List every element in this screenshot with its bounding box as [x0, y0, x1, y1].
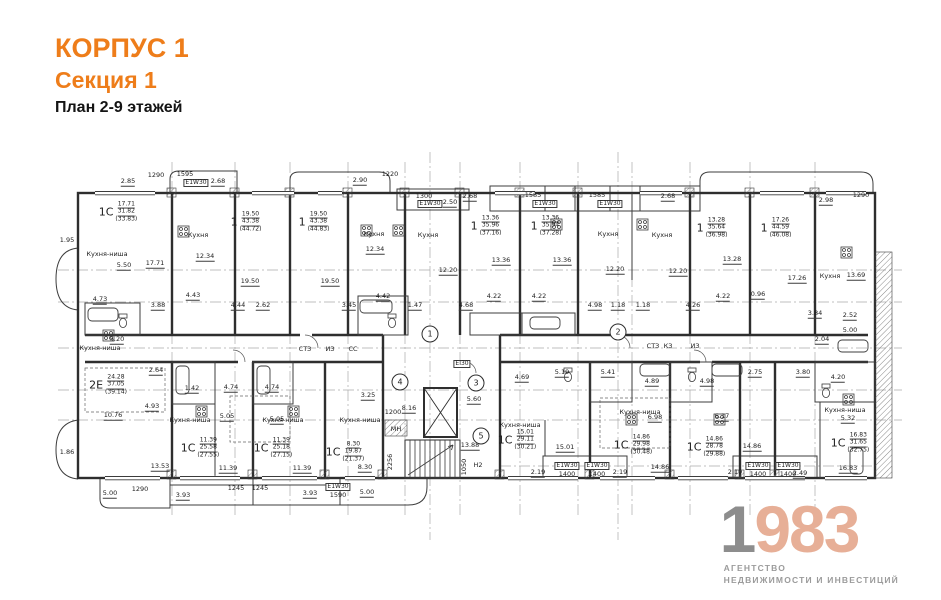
plan-label: 1245: [252, 485, 269, 492]
plan-label: 2.19: [728, 469, 742, 478]
plan-label: 4.22: [532, 293, 546, 302]
plan-label: 1220: [382, 171, 399, 178]
plan-label: 12.34: [196, 253, 215, 262]
apartment-label: 113.3635.94(37.28): [531, 216, 562, 237]
plan-label: 4.68: [459, 302, 473, 311]
plan-label: СС: [348, 346, 357, 353]
page: КОРПУС 1 Секция 1 План 2-9 этажей: [0, 0, 941, 600]
logo-year-rest: 983: [754, 492, 858, 566]
logo-subtitle: АГЕНТСТВО НЕДВИЖИМОСТИ И ИНВЕСТИЦИЙ: [720, 563, 899, 586]
plan-label: 1050: [461, 459, 468, 476]
plan-label: 1300: [416, 193, 433, 200]
plan-label: 2.85: [121, 178, 135, 187]
plan-label: 4.98: [700, 378, 714, 387]
plan-label: 5.00: [843, 327, 857, 336]
plan-label: 6.17: [715, 413, 729, 422]
plan-label: 5.20: [110, 336, 124, 345]
plan-label: 4.22: [487, 293, 501, 302]
plan-label: 1290: [132, 486, 149, 493]
plan-label: ЕІ30: [453, 360, 470, 368]
plan-label: 2.90: [353, 177, 367, 186]
plan-label: 3.80: [796, 369, 810, 378]
plan-label: Кухня-ниша: [262, 417, 303, 424]
plan-label: МН: [391, 426, 402, 433]
apartment-label: 119.5043.38(44.83): [299, 212, 330, 233]
logo-year-first: 1: [720, 492, 755, 566]
plan-label: Кухня-ниша: [169, 417, 210, 424]
plan-label: СТЗ: [299, 346, 312, 353]
plan-label: 3.93: [176, 492, 190, 501]
plan-label: 1585: [525, 192, 542, 199]
apartment-label: 1С17.7131.82(33.83): [99, 202, 138, 223]
plan-label: 4.26: [686, 302, 700, 311]
plan-label: 2.62: [256, 302, 270, 311]
plan-label: 12.20: [669, 268, 688, 277]
plan-label: Е1W30: [183, 179, 208, 187]
plan-label: 4.89: [645, 378, 659, 387]
plan-label: 4.44: [231, 302, 245, 311]
plan-label: 1.95: [60, 237, 74, 244]
plan-label: 1595: [177, 171, 194, 178]
axis-marker: 5: [473, 428, 490, 445]
plan-label: Кухня: [418, 232, 438, 239]
axis-marker: 2: [610, 324, 627, 341]
plan-label: 13.69: [847, 272, 866, 281]
plan-label: 16.83: [839, 465, 858, 474]
plan-label: 1400: [559, 471, 576, 478]
plan-label: Н2: [473, 462, 482, 469]
plan-label: 17.26: [788, 275, 807, 284]
plan-label: 4.73: [93, 296, 107, 305]
plan-label: 8.30: [358, 464, 372, 473]
plan-label: Кухня-ниша: [824, 407, 865, 414]
plan-label: 3.93: [303, 490, 317, 499]
plan-label: ИЗ: [325, 346, 334, 353]
elevator-shaft: [424, 388, 457, 437]
apartment-label: 1С11.3925.58(27.55): [181, 438, 220, 459]
apartment-label: 117.2644.59(46.08): [761, 218, 792, 239]
plan-label: 13.53: [151, 463, 170, 472]
plan-label: 3.88: [151, 302, 165, 311]
plan-label: 5.50: [117, 262, 131, 271]
plan-label: Кухня-ниша: [86, 251, 127, 258]
staircase: [405, 440, 460, 478]
plan-label: 5.60: [467, 396, 481, 405]
plan-label: 4.20: [831, 374, 845, 383]
plan-label: Кухня-ниша: [339, 417, 380, 424]
plan-label: СТЗ: [647, 343, 660, 350]
plan-label: 1290: [148, 172, 165, 179]
plan-label: 1.86: [60, 449, 74, 456]
plan-label: 2.64: [149, 367, 163, 376]
plan-label: 14.86: [651, 464, 670, 473]
plan-label: 5.00: [103, 490, 117, 499]
apartment-label: 1С11.3925.18(27.15): [254, 438, 293, 459]
plan-label: 10.76: [104, 412, 123, 421]
plan-label: 2.04: [815, 336, 829, 345]
apartment-label: 1С14.8629.98(30.48): [614, 435, 653, 456]
plan-label: ИЗ: [690, 343, 699, 350]
plan-label: 4.93: [145, 403, 159, 412]
plan-label: 14.86: [743, 443, 762, 452]
apartment-label: 113.3635.96(37.16): [471, 216, 502, 237]
plan-label: 4.69: [515, 374, 529, 383]
plan-label: 17.71: [146, 260, 165, 269]
plan-label: 3.45: [342, 302, 356, 311]
plan-label: 13.28: [723, 256, 742, 265]
plan-label: 2.19: [613, 469, 627, 478]
apartment-label: 1С15.0129.11(30.21): [498, 430, 537, 451]
agency-logo: 1983 АГЕНТСТВО НЕДВИЖИМОСТИ И ИНВЕСТИЦИЙ: [720, 498, 899, 586]
axis-marker: 4: [392, 374, 409, 391]
plan-label: 5.19: [555, 369, 569, 378]
apartment-label: 1С8.3019.87(21.37): [326, 442, 365, 463]
apartment-label: 1С16.8331.65(32.75): [831, 433, 870, 454]
plan-label: 4.22: [716, 293, 730, 302]
plan-label: 11.39: [219, 465, 238, 474]
plan-label: 2.19: [531, 469, 545, 478]
plan-label: 2.68: [463, 193, 477, 202]
plan-label: 13.36: [492, 257, 511, 266]
logo-year: 1983: [720, 498, 899, 561]
plan-label: 1400: [750, 471, 767, 478]
plan-label: 13.36: [553, 257, 572, 266]
plan-label: 2.75: [748, 369, 762, 378]
plan-label: 1245: [228, 485, 245, 492]
plan-label: 1590: [330, 492, 347, 499]
plan-label: 1.18: [611, 302, 625, 311]
plan-label: 12.20: [439, 267, 458, 276]
plan-label: 4.98: [588, 302, 602, 311]
plan-label: Е1W30: [597, 200, 622, 208]
apartment-label: 2Е24.2837.05(39.14): [89, 375, 127, 396]
plan-label: 4.43: [186, 292, 200, 301]
plan-label: 19.50: [241, 278, 260, 287]
plan-label: 3.25: [361, 392, 375, 401]
plan-label: 1.18: [636, 302, 650, 311]
plan-label: 5.00: [360, 489, 374, 498]
plan-label: 2.68: [661, 193, 675, 202]
plan-label: 2.52: [843, 312, 857, 321]
plan-label: Е1W30: [417, 200, 442, 208]
plan-label: 2256: [387, 454, 394, 471]
plan-label: 4.42: [376, 293, 390, 302]
plan-label: 2.50: [443, 199, 457, 208]
plan-label: 4.74: [265, 384, 279, 393]
plan-label: 11.39: [293, 465, 312, 474]
plan-label: Е1W30: [532, 200, 557, 208]
plan-label: Кухня-ниша: [79, 345, 120, 352]
plan-label: Кухня-ниша: [499, 422, 540, 429]
plan-label: Кухня: [364, 231, 384, 238]
logo-subtitle-line2: НЕДВИЖИМОСТИ И ИНВЕСТИЦИЙ: [724, 575, 899, 586]
plan-label: Кухня: [652, 232, 672, 239]
plan-label: 5.05: [220, 413, 234, 422]
axis-marker: 1: [422, 326, 439, 343]
plan-label: 8.16: [402, 405, 416, 414]
plan-label: 2.98: [819, 197, 833, 206]
plan-label: 4.74: [224, 384, 238, 393]
plan-label: 1200: [385, 409, 402, 416]
axis-marker: 3: [468, 375, 485, 392]
plan-label: 3.84: [808, 310, 822, 319]
plan-label: Кухня-ниша: [619, 409, 660, 416]
apartment-label: 119.5043.38(44.72): [231, 212, 262, 233]
plan-label: 19.50: [321, 278, 340, 287]
plan-label: Кухня: [820, 273, 840, 280]
plan-label: 2.68: [211, 178, 225, 187]
plan-label: 1.42: [185, 385, 199, 394]
plan-label: 15.01: [556, 444, 575, 453]
plan-label: 0.96: [751, 291, 765, 300]
plan-label: Кухня: [188, 232, 208, 239]
plan-label: 12.20: [606, 266, 625, 275]
plan-label: 5.32: [841, 415, 855, 424]
plan-label: 1290: [853, 192, 870, 199]
plan-label: 5.41: [601, 369, 615, 378]
plan-label: 1585: [589, 192, 606, 199]
plan-label: 12.34: [366, 246, 385, 255]
plan-label: 1400: [780, 471, 797, 478]
plan-label: КЗ: [664, 343, 673, 350]
apartment-label: 113.2835.64(36.98): [697, 218, 728, 239]
plan-label: 1400: [589, 471, 606, 478]
plan-label: Кухня: [598, 231, 618, 238]
grid-centerlines: [58, 152, 902, 540]
plan-label: 1.47: [408, 302, 422, 311]
apartment-label: 1С14.8628.78(29.88): [687, 437, 726, 458]
